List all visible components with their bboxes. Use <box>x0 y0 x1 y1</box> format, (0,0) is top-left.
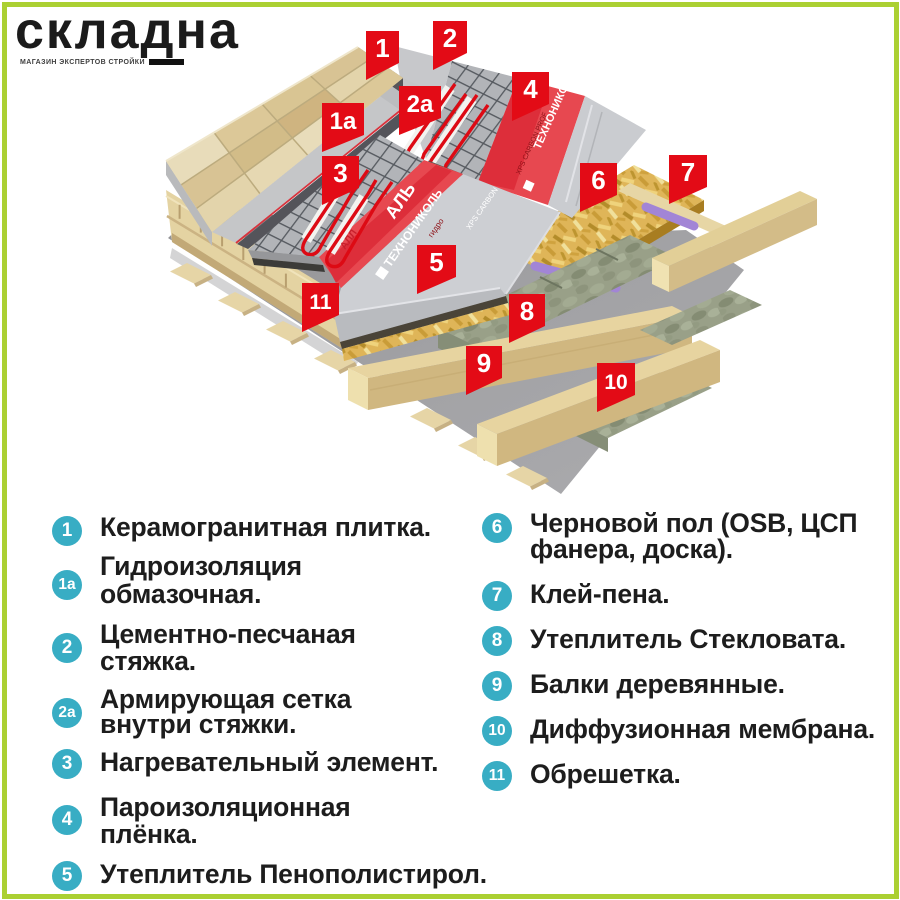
svg-text:2a: 2a <box>407 91 434 118</box>
svg-text:4: 4 <box>523 74 538 104</box>
svg-text:1a: 1a <box>330 108 357 135</box>
svg-text:3: 3 <box>333 158 347 188</box>
svg-text:9: 9 <box>477 348 491 378</box>
svg-text:5: 5 <box>429 247 443 277</box>
svg-text:10: 10 <box>604 371 627 394</box>
svg-text:8: 8 <box>520 296 534 326</box>
svg-text:7: 7 <box>681 157 695 187</box>
svg-text:11: 11 <box>309 291 332 314</box>
svg-text:1: 1 <box>375 33 389 63</box>
svg-text:6: 6 <box>591 165 605 195</box>
svg-text:2: 2 <box>443 23 457 53</box>
